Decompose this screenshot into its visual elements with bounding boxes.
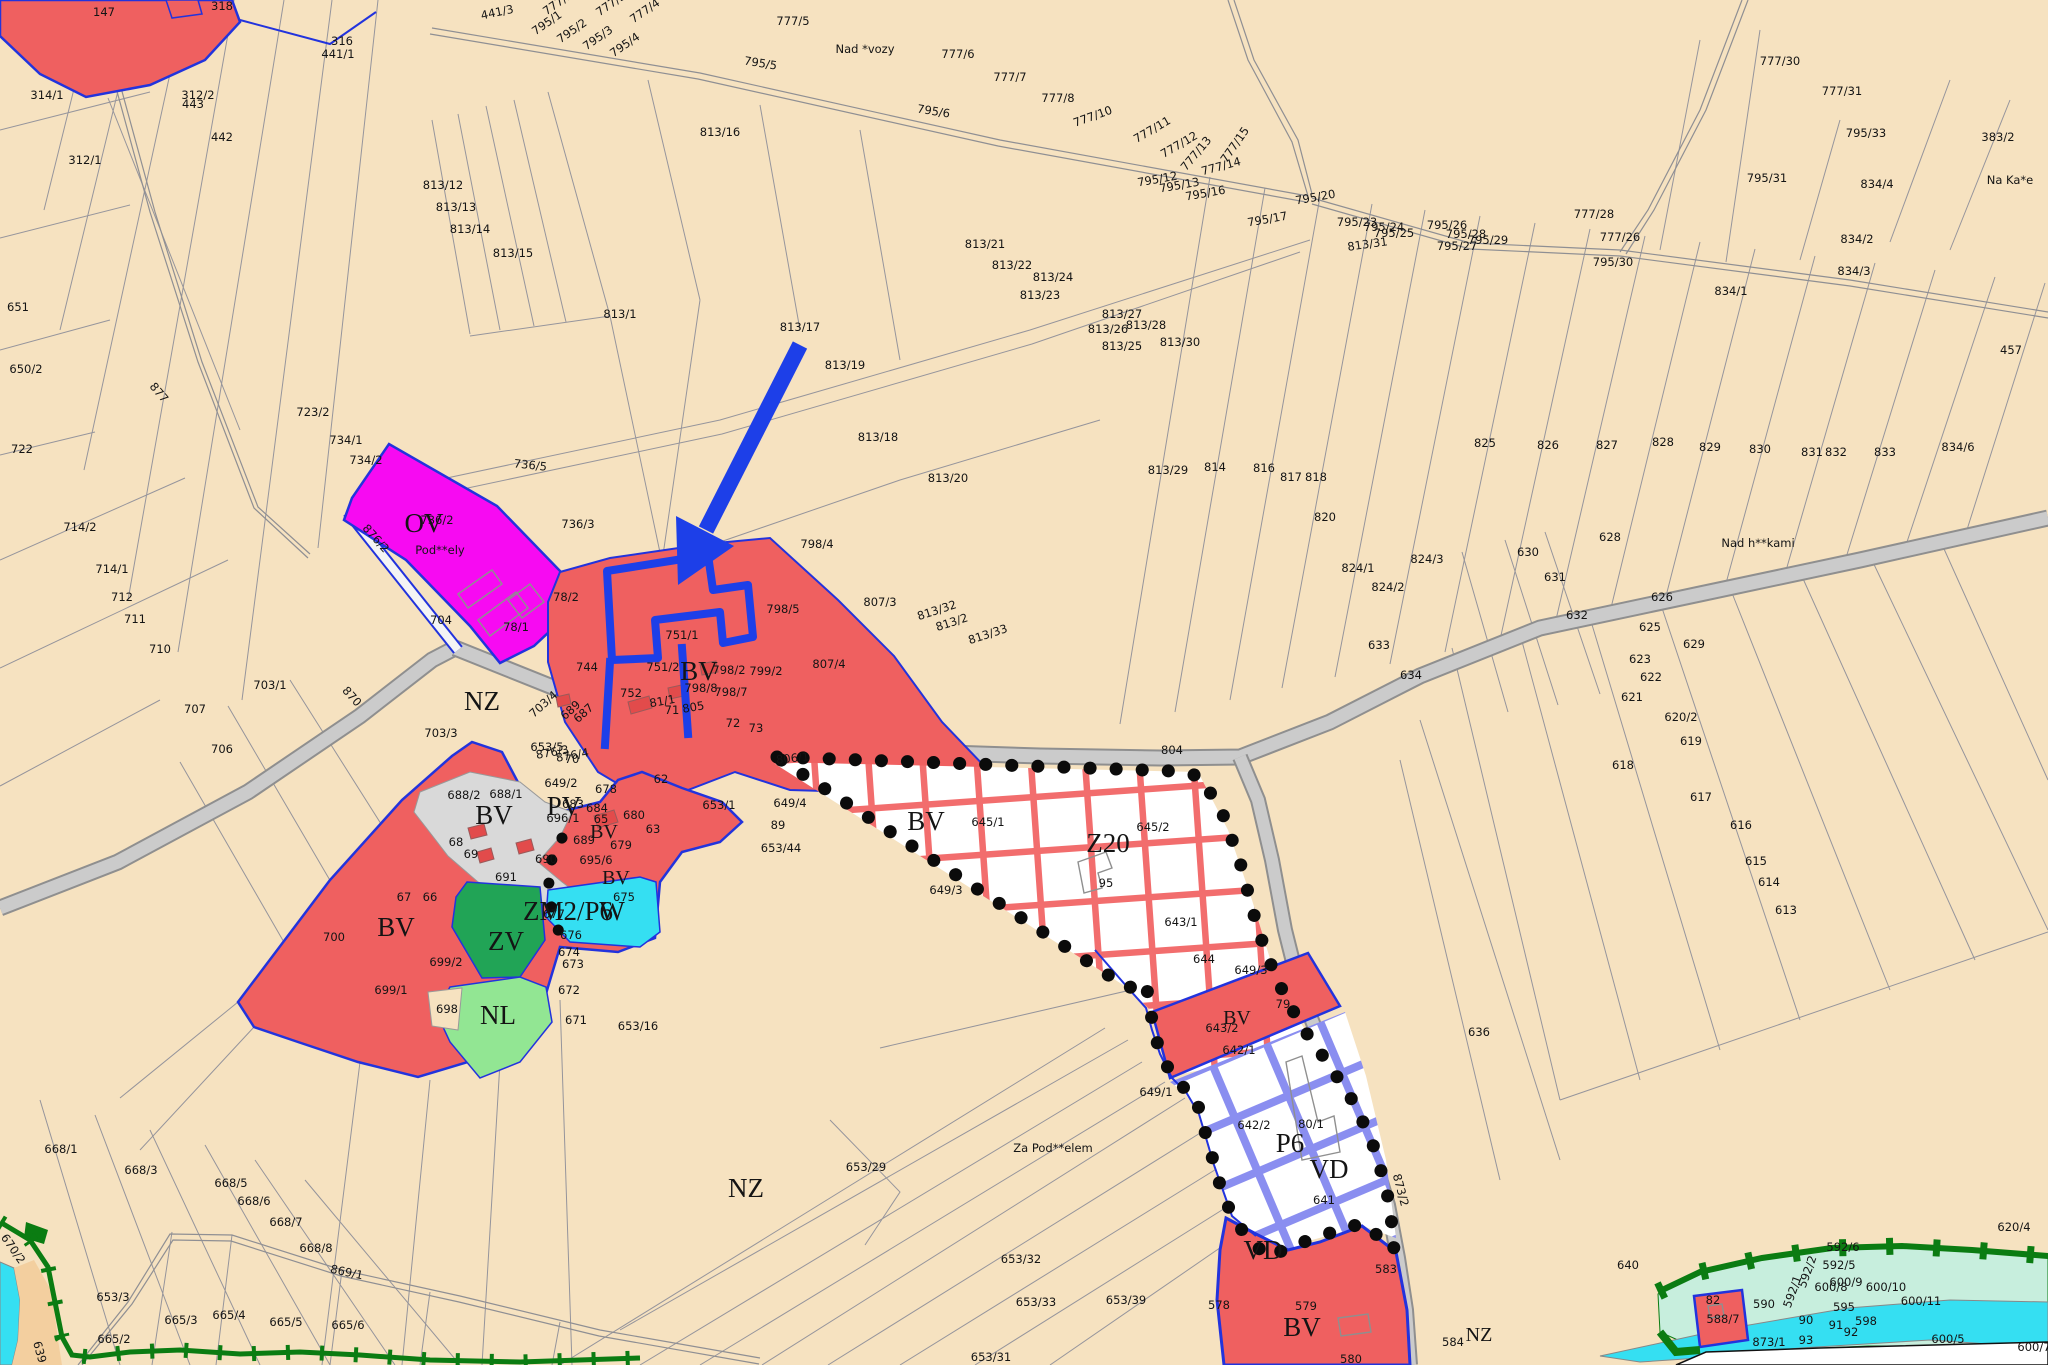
zone-code-label: VD: [1244, 1235, 1283, 1265]
parcel-number-label: 777/8: [1041, 91, 1074, 105]
parcel-number-label: 824/1: [1341, 561, 1374, 575]
zoning-map-viewport[interactable]: 147318316441/1441/3443442312/2312/1314/1…: [0, 0, 2048, 1365]
parcel-number-label: 813/19: [825, 358, 865, 372]
parcel-number-label: 816: [1253, 461, 1275, 475]
parcel-number-label: 592/5: [1822, 1258, 1855, 1272]
parcel-number-label: 95: [1099, 876, 1114, 890]
parcel-number-label: 89: [771, 818, 786, 832]
parcel-number-label: 78/2: [553, 590, 579, 604]
parcel-number-label: 668/1: [44, 1142, 77, 1156]
parcel-number-label: 643/2: [1205, 1021, 1238, 1035]
parcel-number-label: 834/1: [1714, 284, 1747, 298]
parcel-number-label: 723/2: [296, 405, 329, 419]
parcel-number-label: 714/1: [95, 562, 128, 576]
parcel-number-label: 72: [726, 716, 741, 730]
zone-code-label: NZ: [464, 686, 500, 716]
parcel-number-label: 834/3: [1837, 264, 1870, 278]
parcel-number-label: 744: [576, 660, 598, 674]
parcel-number-label: 807/4: [812, 657, 845, 671]
parcel-number-label: 832: [1825, 445, 1847, 459]
parcel-number-label: 73: [749, 721, 764, 735]
parcel-number-label: 668/5: [214, 1176, 247, 1190]
parcel-number-label: 653/44: [761, 841, 801, 855]
parcel-number-label: 600/5: [1931, 1332, 1964, 1346]
parcel-number-label: 630: [1517, 545, 1539, 559]
parcel-number-label: 707: [184, 702, 206, 716]
parcel-number-label: 592/6: [1826, 1240, 1859, 1254]
parcel-number-label: 668/3: [124, 1163, 157, 1177]
parcel-number-label: 712: [111, 590, 133, 604]
parcel-number-label: 632: [1566, 608, 1588, 622]
parcel-number-label: 795/29: [1468, 233, 1508, 247]
parcel-number-label: 583: [1375, 1262, 1397, 1276]
parcel-number-label: 691: [495, 870, 517, 884]
parcel-number-label: 679: [610, 838, 632, 852]
parcel-number-label: 699/2: [429, 955, 462, 969]
parcel-number-label: 620/2: [1664, 710, 1697, 724]
parcel-number-label: 92: [1844, 1325, 1859, 1339]
parcel-number-label: 834/2: [1840, 232, 1873, 246]
parcel-number-label: 580: [1340, 1352, 1362, 1365]
parcel-number-label: 813/23: [1020, 288, 1060, 302]
parcel-number-label: 826: [1537, 438, 1559, 452]
parcel-number-label: 813/12: [423, 178, 463, 192]
parcel-number-label: 752: [620, 686, 642, 700]
parcel-number-label: 676: [560, 928, 582, 942]
parcel-number-label: 578: [1208, 1298, 1230, 1312]
zone-code-label: P6: [1276, 1128, 1305, 1158]
parcel-number-label: 640: [1617, 1258, 1639, 1272]
parcel-number-label: 813/30: [1160, 335, 1200, 349]
parcel-number-label: 698: [436, 1002, 458, 1016]
parcel-number-label: 600/9: [1829, 1275, 1862, 1289]
parcel-number-label: 671: [565, 1013, 587, 1027]
parcel-number-label: 653/31: [971, 1350, 1011, 1364]
parcel-number-label: 798/2: [712, 663, 745, 677]
parcel-number-label: 314/1: [30, 88, 63, 102]
parcel-number-label: 672: [558, 983, 580, 997]
parcel-number-label: 795/30: [1593, 255, 1633, 269]
parcel-number-label: 90: [1799, 1313, 1814, 1327]
parcel-number-label: 653/1: [702, 798, 735, 812]
parcel-number-label: 777/31: [1822, 84, 1862, 98]
parcel-number-label: 600/11: [1901, 1294, 1941, 1308]
parcel-number-label: 615: [1745, 854, 1767, 868]
parcel-number-label: 643/1: [1164, 915, 1197, 929]
parcel-number-label: 625: [1639, 620, 1661, 634]
parcel-number-label: 651: [7, 300, 29, 314]
parcel-number-label: 828: [1652, 435, 1674, 449]
parcel-number-label: 703/1: [253, 678, 286, 692]
parcel-number-label: 665/2: [97, 1332, 130, 1346]
parcel-number-label: 665/4: [212, 1308, 245, 1322]
parcel-number-label: 620/4: [1997, 1220, 2030, 1234]
parcel-number-label: 813/26: [1088, 322, 1128, 336]
parcel-number-label: 704: [430, 613, 452, 627]
highlighted-parcel-outline-2: [605, 662, 610, 745]
parcel-number-label: 795/31: [1747, 171, 1787, 185]
parcel-number-label: 441/1: [321, 47, 354, 61]
parcel-number-label: 813/21: [965, 237, 1005, 251]
parcel-number-label: 595: [1833, 1300, 1855, 1314]
parcel-number-label: 649/3: [1234, 963, 1267, 977]
parcel-number-label: 798/7: [714, 685, 747, 699]
parcel-number-label: 69: [464, 847, 479, 861]
parcel-number-label: 824/2: [1371, 580, 1404, 594]
parcel-number-label: 668/6: [237, 1194, 270, 1208]
zone-code-label: BV: [1283, 1312, 1321, 1342]
parcel-number-label: 734/1: [329, 433, 362, 447]
parcel-number-label: 827: [1596, 438, 1618, 452]
parcel-number-label: 703/3: [424, 726, 457, 740]
parcel-number-label: 689: [573, 833, 595, 847]
zone-code-label: NL: [480, 1000, 516, 1030]
zone-code-label: NZ: [728, 1173, 764, 1203]
parcel-number-label: 817: [1280, 470, 1302, 484]
parcel-number-label: 700: [323, 930, 345, 944]
parcel-number-label: 820: [1314, 510, 1336, 524]
parcel-number-label: 636: [1468, 1025, 1490, 1039]
parcel-number-label: 777/5: [776, 14, 809, 28]
parcel-number-label: 653/32: [1001, 1252, 1041, 1266]
parcel-number-label: 834/4: [1860, 177, 1893, 191]
zone-code-label: Z20: [1086, 828, 1130, 858]
parcel-number-label: 579: [1295, 1299, 1317, 1313]
parcel-number-label: 807/3: [863, 595, 896, 609]
parcel-number-label: 645/2: [1136, 820, 1169, 834]
parcel-number-label: 813/20: [928, 471, 968, 485]
parcel-number-label: 588/7: [1706, 1312, 1739, 1326]
parcel-number-label: 621: [1621, 690, 1643, 704]
parcel-number-label: 93: [1799, 1333, 1814, 1347]
parcel-number-label: 688/1: [489, 787, 522, 801]
parcel-number-label: 706: [211, 742, 233, 756]
parcel-number-label: 711: [124, 612, 146, 626]
zone-code-label: BV: [907, 806, 945, 836]
parcel-number-label: 617: [1690, 790, 1712, 804]
parcel-number-label: 383/2: [1981, 130, 2014, 144]
parcel-number-label: 626: [1651, 590, 1673, 604]
parcel-number-label: 147: [93, 5, 115, 19]
parcel-number-label: 665/3: [164, 1313, 197, 1327]
parcel-number-label: 79: [1276, 997, 1291, 1011]
parcel-number-label: 813/24: [1033, 270, 1073, 284]
parcel-number-label: 813/29: [1148, 463, 1188, 477]
parcel-number-label: 628: [1599, 530, 1621, 544]
parcel-number-label: 68: [449, 835, 464, 849]
parcel-number-label: 665/6: [331, 1318, 364, 1332]
parcel-number-label: 622: [1640, 670, 1662, 684]
parcel-number-label: 649/4: [773, 796, 806, 810]
zone-code-label: VD: [1310, 1154, 1349, 1184]
zone-BV-318[interactable]: [166, 0, 202, 18]
parcel-number-label: 695/6: [579, 853, 612, 867]
zone-code-label: W: [599, 896, 625, 926]
parcel-number-label: 799/2: [749, 664, 782, 678]
parcel-number-label: 710: [149, 642, 171, 656]
parcel-number-label: 813/22: [992, 258, 1032, 272]
parcel-number-label: 312/2: [181, 88, 214, 102]
parcel-number-label: 777/6: [941, 47, 974, 61]
parcel-number-label: 649/1: [1139, 1085, 1172, 1099]
parcel-number-label: 829: [1699, 440, 1721, 454]
parcel-number-label: 316: [331, 34, 353, 48]
parcel-number-label: 649/3: [929, 883, 962, 897]
parcel-number-label: 645/1: [971, 815, 1004, 829]
parcel-number-label: 600/10: [1866, 1280, 1906, 1294]
parcel-number-label: 818: [1305, 470, 1327, 484]
parcel-number-label: 751/2: [646, 660, 679, 674]
parcel-number-label: 633: [1368, 638, 1390, 652]
parcel-number-label: 714/2: [63, 520, 96, 534]
parcel-number-label: 650/2: [9, 362, 42, 376]
parcel-number-label: 642/1: [1222, 1043, 1255, 1057]
parcel-number-label: 668/7: [269, 1215, 302, 1229]
parcel-number-label: 690: [535, 852, 557, 866]
parcel-number-label: 696/1: [546, 811, 579, 825]
parcel-number-label: 66: [423, 890, 438, 904]
parcel-number-label: 623: [1629, 652, 1651, 666]
place-name-label: Pod**ely: [415, 543, 465, 557]
parcel-number-label: 722: [11, 442, 33, 456]
place-name-label: Za Pod**elem: [1013, 1141, 1093, 1155]
parcel-number-label: 688/2: [447, 788, 480, 802]
parcel-number-label: 673: [562, 957, 584, 971]
map-background: [0, 0, 2048, 1365]
parcel-number-label: 873/1: [1752, 1335, 1785, 1349]
parcel-number-label: 614: [1758, 875, 1780, 889]
parcel-number-label: 641: [1313, 1193, 1335, 1207]
place-name-label: Na Ka*e: [1987, 173, 2034, 187]
parcel-number-label: 814: [1204, 460, 1226, 474]
parcel-number-label: 62: [654, 772, 669, 786]
parcel-number-label: 649/2: [544, 776, 577, 790]
zone-code-label: ZV: [488, 926, 524, 956]
parcel-number-label: 584: [1442, 1335, 1464, 1349]
parcel-number-label: 833: [1874, 445, 1896, 459]
parcel-number-label: 736/3: [561, 517, 594, 531]
parcel-number-label: 777/7: [993, 70, 1026, 84]
parcel-number-label: 613: [1775, 903, 1797, 917]
parcel-number-label: 653/16: [618, 1019, 658, 1033]
parcel-number-label: 318: [211, 0, 233, 13]
parcel-number-label: 831: [1801, 445, 1823, 459]
parcel-number-label: 631: [1544, 570, 1566, 584]
parcel-number-label: 665/5: [269, 1315, 302, 1329]
parcel-number-label: 813/15: [493, 246, 533, 260]
parcel-number-label: 777/30: [1760, 54, 1800, 68]
parcel-number-label: 813/28: [1126, 318, 1166, 332]
parcel-number-label: 804: [1161, 743, 1183, 757]
parcel-number-label: 824/3: [1410, 552, 1443, 566]
parcel-number-label: 619: [1680, 734, 1702, 748]
parcel-number-label: 668/8: [299, 1241, 332, 1255]
parcel-number-label: 734/2: [349, 453, 382, 467]
parcel-number-label: 825: [1474, 436, 1496, 450]
parcel-number-label: 457: [2000, 343, 2022, 357]
zone-code-label: BV: [377, 912, 415, 942]
parcel-number-label: 653/33: [1016, 1295, 1056, 1309]
parcel-number-label: 91: [1829, 1318, 1844, 1332]
parcel-number-label: 70: [565, 752, 580, 766]
parcel-number-label: 777/26: [1600, 230, 1640, 244]
parcel-number-label: 590: [1753, 1297, 1775, 1311]
parcel-number-label: 813/25: [1102, 339, 1142, 353]
parcel-number-label: 751/1: [665, 628, 698, 642]
parcel-number-label: 813/13: [436, 200, 476, 214]
parcel-number-label: 699/1: [374, 983, 407, 997]
parcel-number-label: 642/2: [1237, 1118, 1270, 1132]
parcel-number-label: 795/33: [1846, 126, 1886, 140]
parcel-number-label: 629: [1683, 637, 1705, 651]
parcel-number-label: 777/28: [1574, 207, 1614, 221]
parcel-number-label: 78/1: [503, 620, 529, 634]
parcel-number-label: 65: [594, 812, 609, 826]
parcel-number-label: 653/3: [96, 1290, 129, 1304]
place-name-label: Nad *vozy: [835, 42, 894, 56]
parcel-number-label: 82: [1706, 1293, 1721, 1307]
parcel-number-label: 67: [397, 890, 412, 904]
parcel-number-label: 813/17: [780, 320, 820, 334]
parcel-number-label: 618: [1612, 758, 1634, 772]
place-name-label: Nad h**kami: [1721, 536, 1794, 550]
parcel-number-label: 813/14: [450, 222, 490, 236]
parcel-number-label: 600/7: [2017, 1340, 2048, 1354]
parcel-number-label: 798/4: [800, 537, 833, 551]
parcel-number-label: 644: [1193, 952, 1215, 966]
parcel-number-label: 63: [646, 822, 661, 836]
zone-code-label: BV: [475, 800, 513, 830]
zone-code-label: BV: [602, 867, 630, 889]
zone-code-label: OV: [405, 508, 444, 538]
parcel-number-label: 813/18: [858, 430, 898, 444]
parcel-number-label: 616: [1730, 818, 1752, 832]
zone-code-label: NZ: [1466, 1324, 1493, 1346]
parcel-number-label: 312/1: [68, 153, 101, 167]
parcel-number-label: 830: [1749, 442, 1771, 456]
parcel-number-label: 798/5: [766, 602, 799, 616]
parcel-number-label: 813/16: [700, 125, 740, 139]
parcel-number-label: 798/8: [684, 681, 717, 695]
parcel-number-label: 634: [1400, 668, 1422, 682]
parcel-number-label: 678: [595, 782, 617, 796]
parcel-number-label: 442: [211, 130, 233, 144]
zoning-map[interactable]: 147318316441/1441/3443442312/2312/1314/1…: [0, 0, 2048, 1365]
parcel-number-label: 834/6: [1941, 440, 1974, 454]
parcel-number-label: 653/29: [846, 1160, 886, 1174]
parcel-number-label: 680: [623, 808, 645, 822]
parcel-number-label: 653/39: [1106, 1293, 1146, 1307]
parcel-number-label: 813/1: [603, 307, 636, 321]
